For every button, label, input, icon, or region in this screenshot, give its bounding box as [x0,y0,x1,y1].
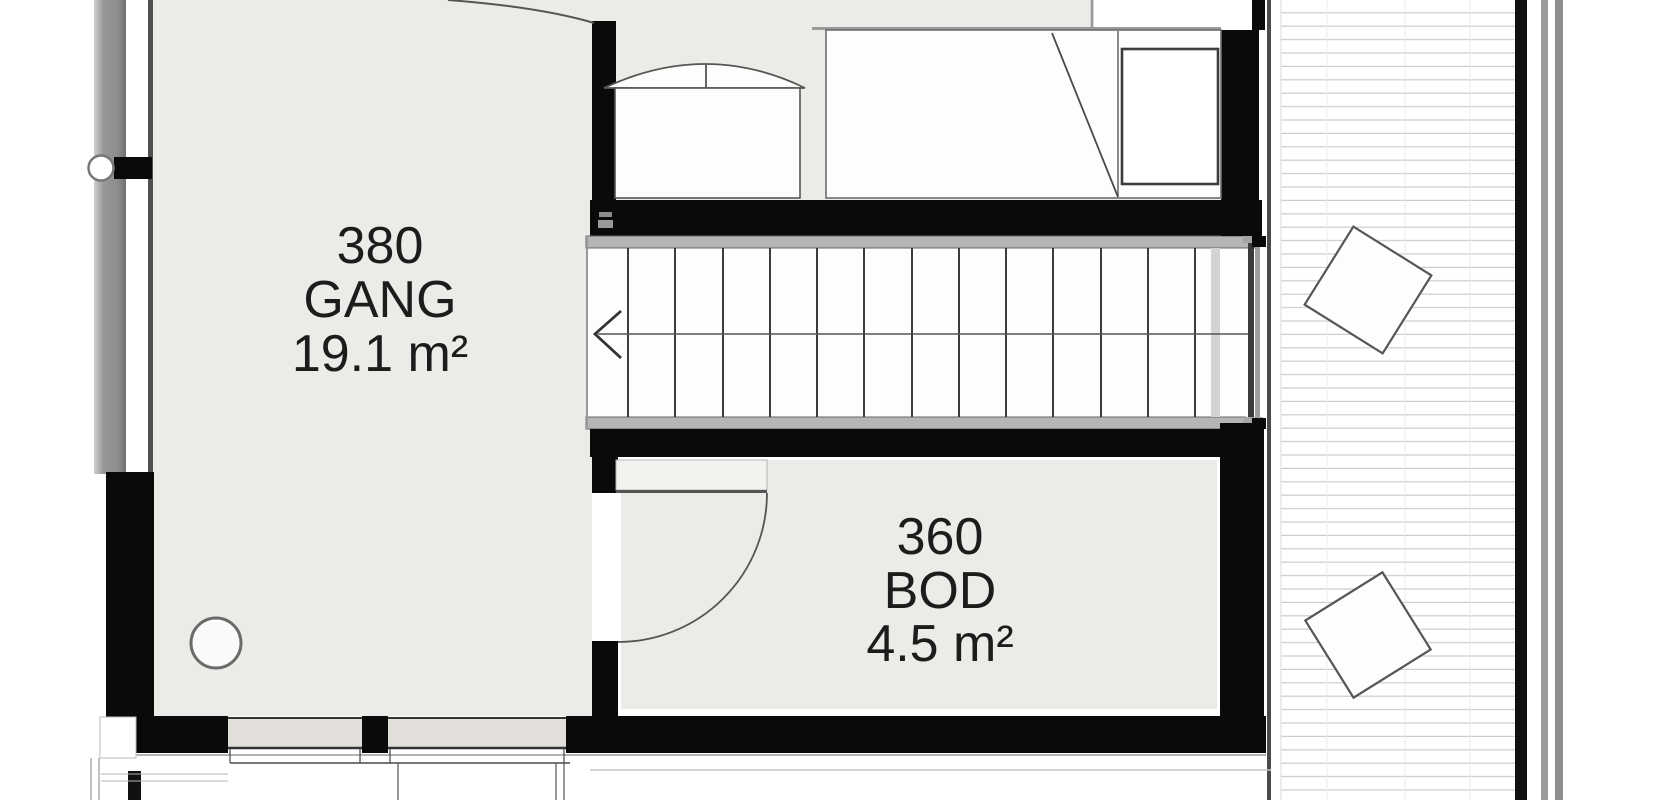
svg-text:380: 380 [337,217,424,275]
svg-text:19.1 m²: 19.1 m² [292,325,468,383]
svg-text:GANG: GANG [303,271,456,329]
svg-text:360: 360 [897,508,984,566]
svg-text:4.5 m²: 4.5 m² [866,615,1013,673]
svg-text:BOD: BOD [884,562,997,620]
